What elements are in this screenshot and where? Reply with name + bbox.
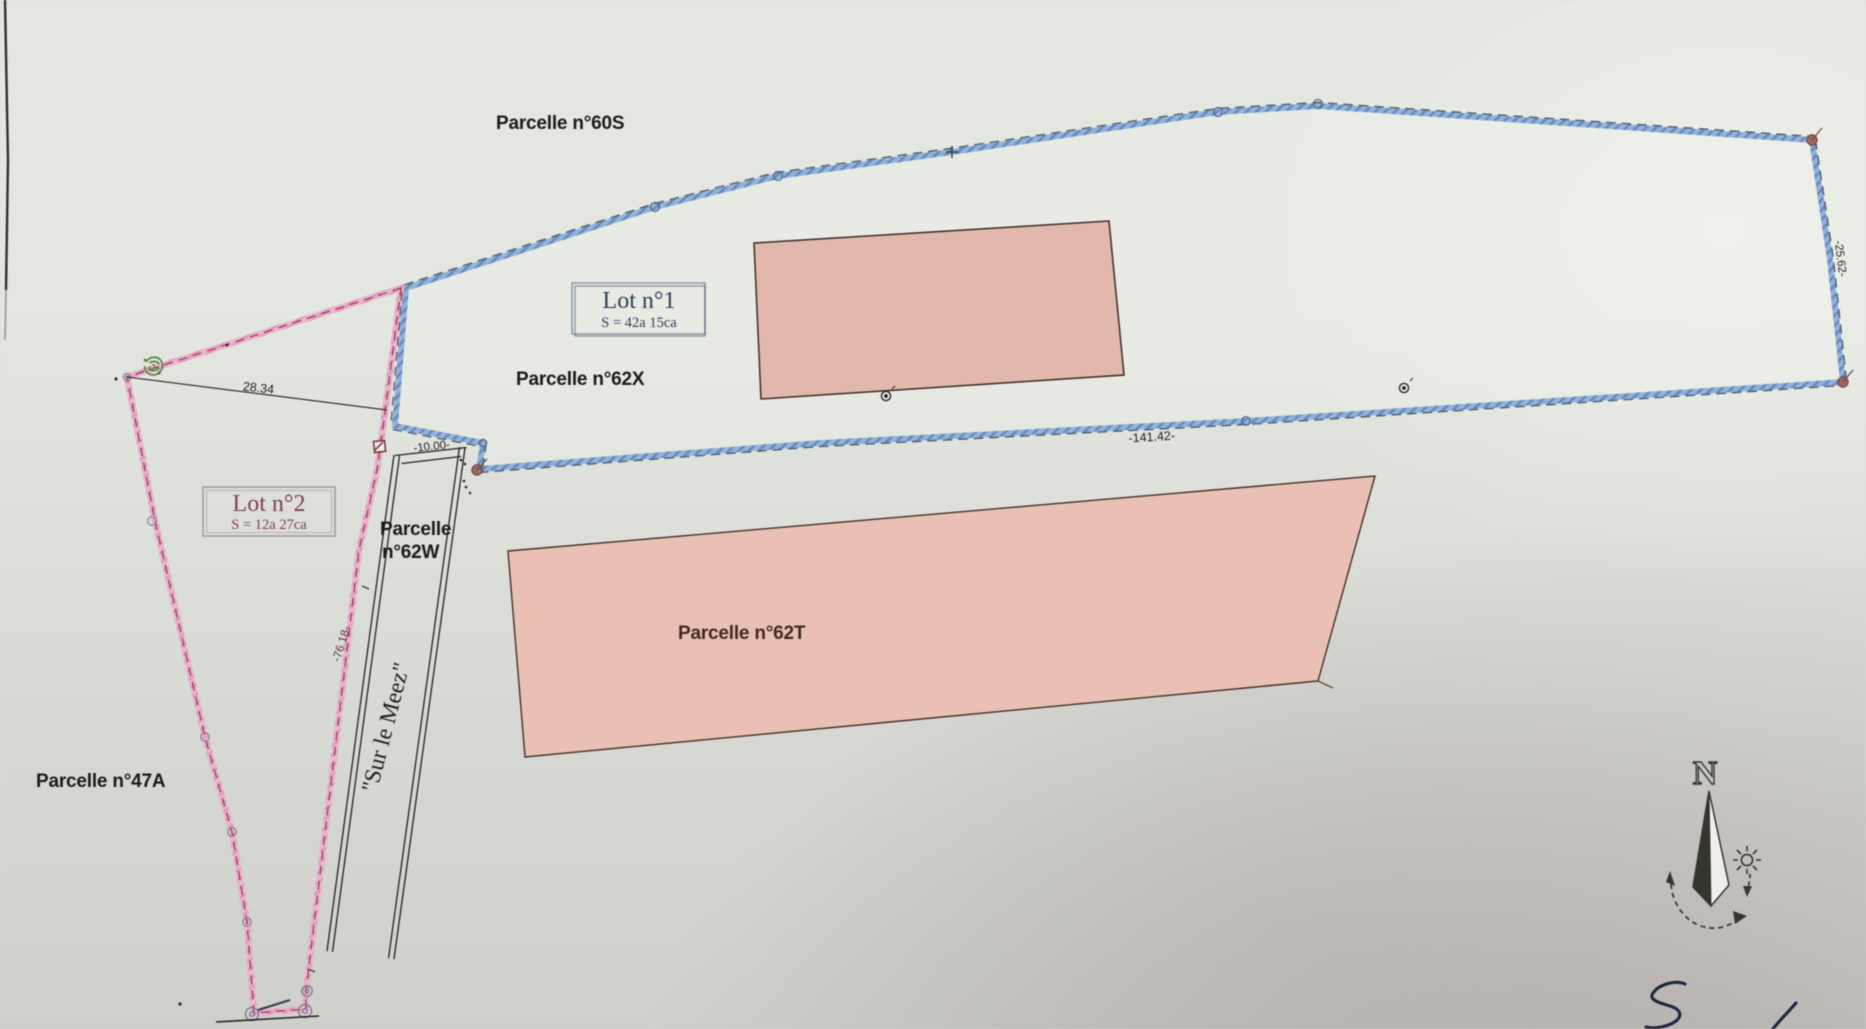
- svg-text:Parcelle n°47A: Parcelle n°47A: [36, 771, 166, 792]
- svg-text:Parcelle n°62T: Parcelle n°62T: [678, 623, 806, 644]
- svg-text:S = 12a 27ca: S = 12a 27ca: [231, 517, 307, 533]
- svg-text:Lot n°1: Lot n°1: [603, 288, 676, 314]
- svg-text:Lot n°2: Lot n°2: [233, 491, 306, 517]
- svg-text:-141.42-: -141.42-: [1128, 429, 1175, 446]
- svg-text:Parcelle n°62X: Parcelle n°62X: [516, 369, 645, 390]
- svg-text:Parcelle: Parcelle: [380, 519, 451, 540]
- svg-text:N: N: [1693, 755, 1718, 792]
- svg-text:S = 42a 15ca: S = 42a 15ca: [601, 315, 677, 331]
- svg-text:n°62W: n°62W: [382, 542, 440, 563]
- svg-text:Parcelle n°60S: Parcelle n°60S: [496, 113, 624, 134]
